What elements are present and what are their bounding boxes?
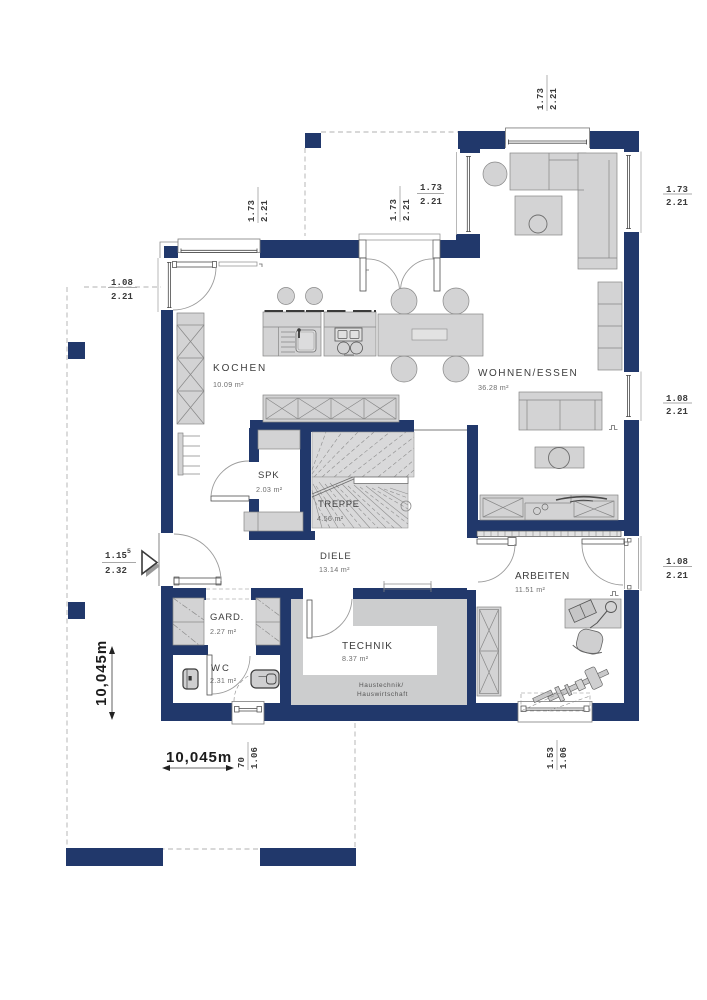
svg-text:11.51 m²: 11.51 m² <box>515 585 546 594</box>
svg-text:5: 5 <box>127 548 131 555</box>
svg-text:1.06: 1.06 <box>250 747 260 769</box>
svg-text:2.32: 2.32 <box>105 566 127 576</box>
svg-text:8.37 m²: 8.37 m² <box>342 654 369 663</box>
svg-text:2.21: 2.21 <box>549 87 559 110</box>
svg-text:2.27 m²: 2.27 m² <box>210 627 237 636</box>
svg-text:2.21: 2.21 <box>402 198 412 221</box>
svg-text:4.56 m²: 4.56 m² <box>317 514 344 523</box>
svg-text:13.14 m²: 13.14 m² <box>319 565 350 574</box>
svg-text:Haustechnik/: Haustechnik/ <box>359 682 404 689</box>
svg-text:WC: WC <box>211 663 231 674</box>
svg-text:WOHNEN/ESSEN: WOHNEN/ESSEN <box>478 368 578 379</box>
svg-text:1.06: 1.06 <box>559 747 569 769</box>
svg-text:2.21: 2.21 <box>260 199 270 222</box>
svg-text:1.73: 1.73 <box>536 88 546 110</box>
svg-text:1.53: 1.53 <box>546 747 556 769</box>
svg-text:2.21: 2.21 <box>666 571 689 581</box>
svg-text:1.73: 1.73 <box>389 199 399 221</box>
svg-text:10,045m: 10,045m <box>93 640 110 706</box>
svg-text:1.08: 1.08 <box>666 394 688 404</box>
svg-text:SPK: SPK <box>258 470 279 481</box>
svg-text:2.21: 2.21 <box>666 407 689 417</box>
svg-text:2.21: 2.21 <box>111 292 134 302</box>
svg-text:ARBEITEN: ARBEITEN <box>515 571 570 582</box>
svg-text:1.08: 1.08 <box>666 557 688 567</box>
svg-text:2.21: 2.21 <box>666 198 689 208</box>
svg-text:Hauswirtschaft: Hauswirtschaft <box>357 691 408 698</box>
svg-text:TREPPE: TREPPE <box>318 499 360 510</box>
svg-text:70: 70 <box>237 757 247 768</box>
svg-text:GARD.: GARD. <box>210 612 244 623</box>
svg-text:1.73: 1.73 <box>247 200 257 222</box>
svg-text:TECHNIK: TECHNIK <box>342 641 393 652</box>
svg-text:1.15: 1.15 <box>105 551 127 561</box>
svg-text:2.21: 2.21 <box>420 197 443 207</box>
svg-text:1.08: 1.08 <box>111 278 133 288</box>
svg-text:10.09 m²: 10.09 m² <box>213 380 244 389</box>
svg-text:KOCHEN: KOCHEN <box>213 363 267 374</box>
svg-text:1.73: 1.73 <box>420 183 442 193</box>
svg-text:DIELE: DIELE <box>320 551 351 562</box>
svg-text:2.03 m²: 2.03 m² <box>256 485 283 494</box>
svg-text:10,045m: 10,045m <box>166 749 232 766</box>
svg-text:2.31 m²: 2.31 m² <box>210 676 237 685</box>
svg-text:1.73: 1.73 <box>666 185 688 195</box>
svg-text:36.28 m²: 36.28 m² <box>478 383 509 392</box>
